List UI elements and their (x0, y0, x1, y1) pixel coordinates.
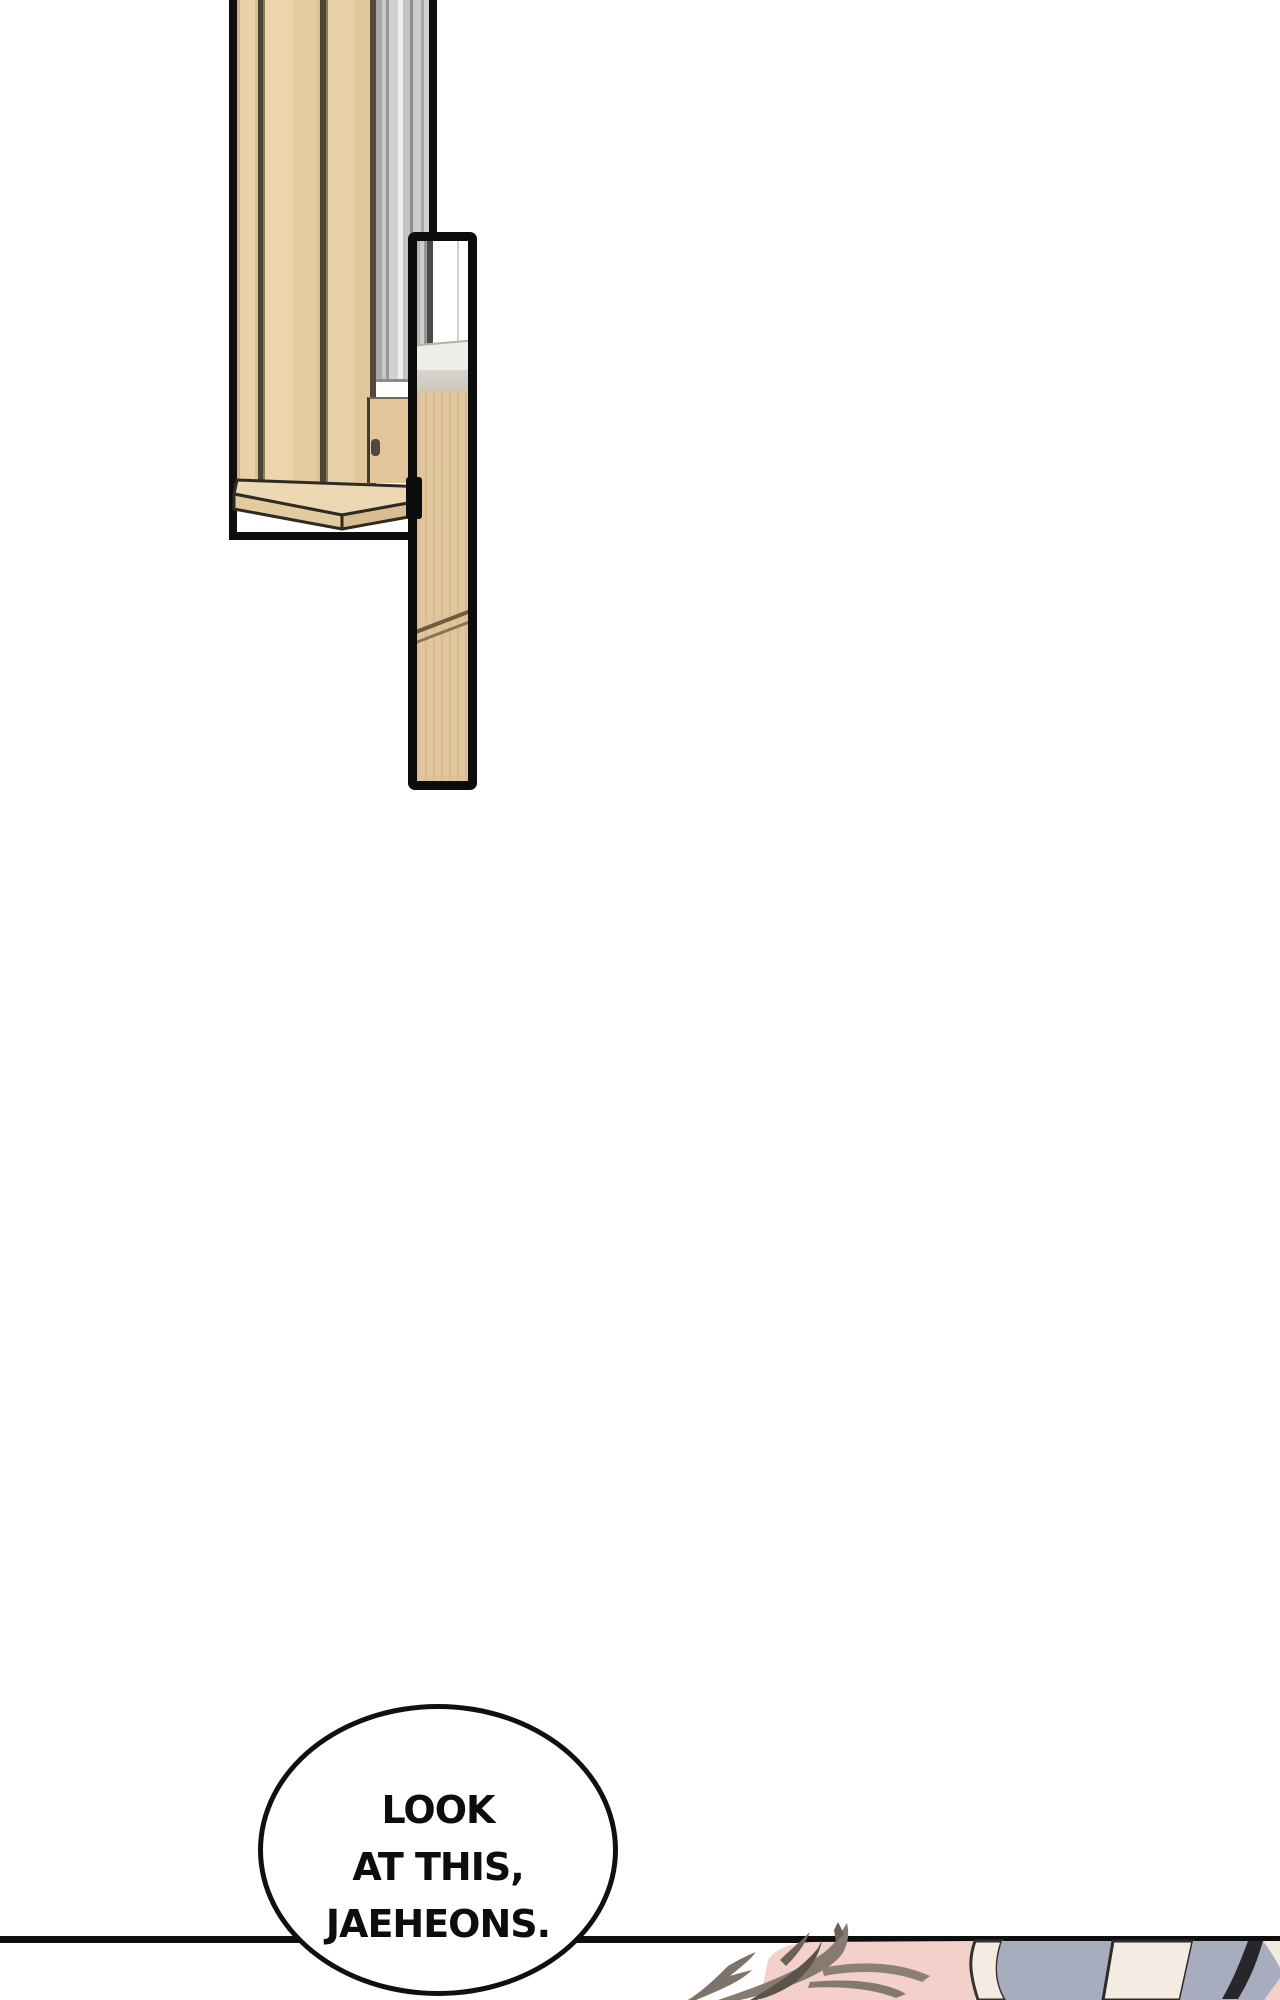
panel1-furniture-scene (237, 0, 429, 532)
bench-knob (371, 439, 380, 456)
faint-wall-line (457, 241, 459, 345)
bubble-line-1: LOOK (263, 1782, 613, 1839)
comic-page: LOOK AT THIS, JAEHEONS. (0, 0, 1280, 2000)
panel2-scene (417, 241, 468, 781)
speech-bubble-text: LOOK AT THIS, JAEHEONS. (263, 1782, 613, 1953)
bubble-line-2: AT THIS, (263, 1839, 613, 1896)
bubble-line-3: JAEHEONS. (263, 1896, 613, 1953)
cream-band (1103, 1941, 1193, 2000)
wood-slats (237, 0, 376, 488)
bench-leg-wood (417, 391, 468, 781)
panel1-left-border (229, 0, 237, 540)
plank-connector-tab (406, 477, 422, 519)
character-closeup-art (600, 1920, 1280, 2000)
speech-bubble: LOOK AT THIS, JAEHEONS. (258, 1704, 618, 1996)
panel1-bottom-border (229, 532, 437, 540)
cloth-blue-gray (997, 1941, 1113, 2000)
seat-shadow-band (417, 370, 468, 392)
